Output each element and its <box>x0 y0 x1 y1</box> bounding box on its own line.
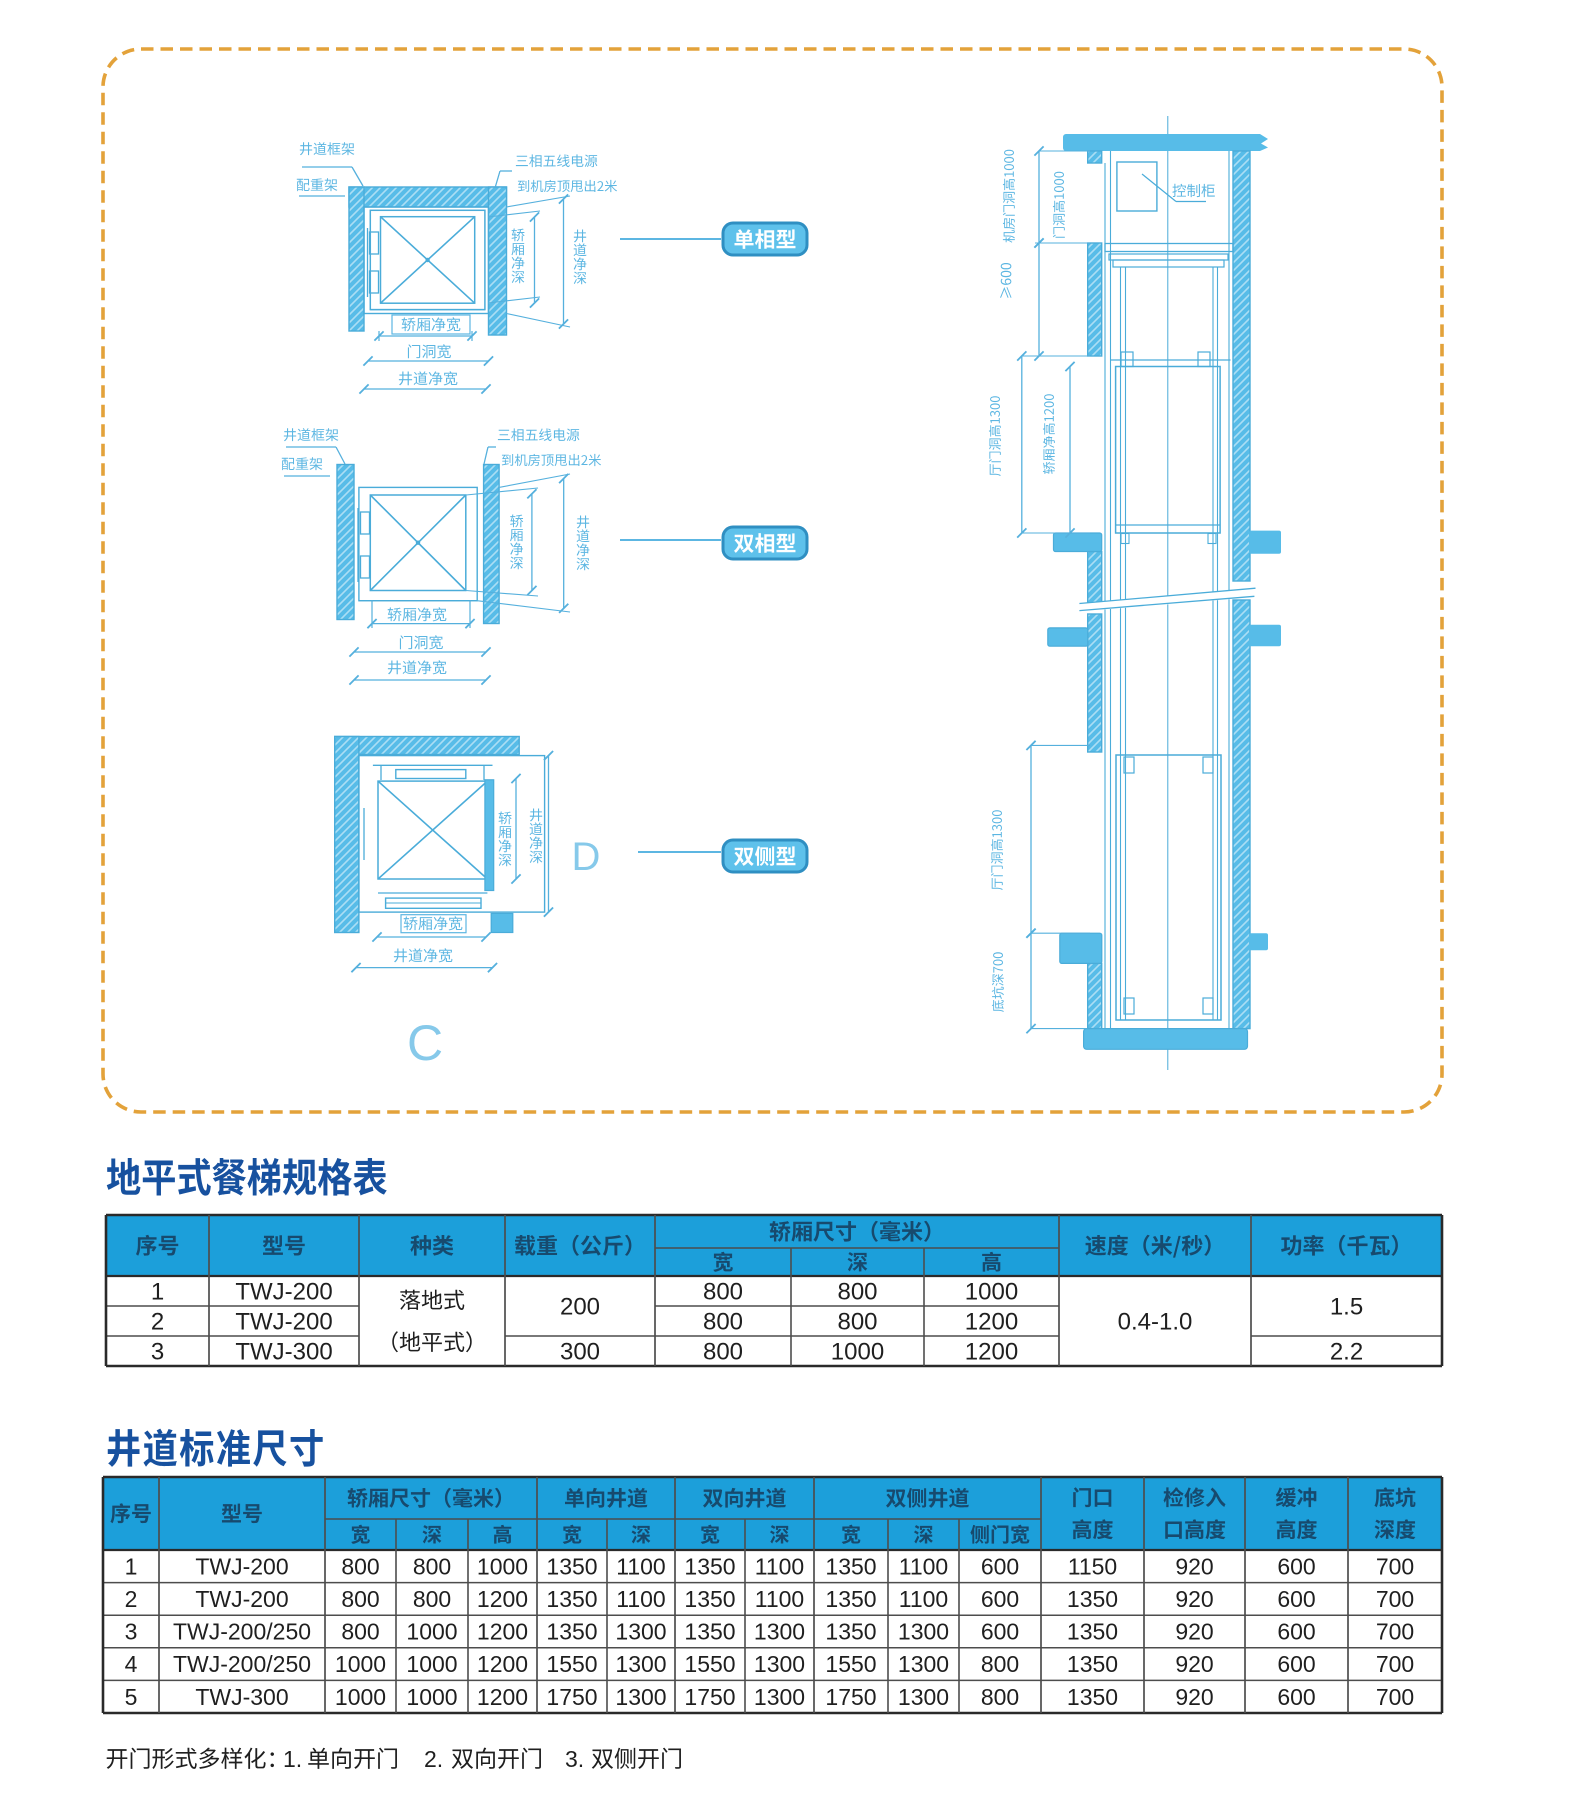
svg-text:1000: 1000 <box>335 1684 386 1710</box>
svg-text:3.: 3. <box>565 1746 584 1772</box>
svg-text:1000: 1000 <box>406 1684 457 1710</box>
svg-text:4: 4 <box>125 1651 138 1677</box>
svg-text:600: 600 <box>981 1553 1019 1579</box>
svg-text:1300: 1300 <box>615 1684 666 1710</box>
svg-text:800: 800 <box>413 1586 451 1612</box>
svg-text:1350: 1350 <box>546 1619 597 1645</box>
svg-text:1350: 1350 <box>546 1553 597 1579</box>
svg-text:800: 800 <box>413 1553 451 1579</box>
svg-text:C: C <box>407 1015 443 1071</box>
svg-text:1350: 1350 <box>1067 1684 1118 1710</box>
svg-text:800: 800 <box>981 1684 1019 1710</box>
svg-text:1300: 1300 <box>754 1684 805 1710</box>
svg-text:700: 700 <box>1376 1684 1414 1710</box>
svg-text:1000: 1000 <box>965 1278 1018 1305</box>
svg-text:1350: 1350 <box>684 1586 735 1612</box>
svg-text:1300: 1300 <box>754 1619 805 1645</box>
svg-text:1: 1 <box>151 1278 164 1305</box>
svg-text:1: 1 <box>125 1553 138 1579</box>
svg-text:700: 700 <box>1376 1553 1414 1579</box>
svg-text:800: 800 <box>341 1619 379 1645</box>
svg-text:1200: 1200 <box>477 1619 528 1645</box>
svg-text:920: 920 <box>1175 1553 1213 1579</box>
svg-text:1000: 1000 <box>831 1338 884 1365</box>
svg-text:1750: 1750 <box>546 1684 597 1710</box>
svg-text:1300: 1300 <box>615 1651 666 1677</box>
svg-text:1100: 1100 <box>755 1553 804 1579</box>
svg-text:1350: 1350 <box>546 1586 597 1612</box>
svg-text:600: 600 <box>981 1619 1019 1645</box>
svg-text:2: 2 <box>151 1308 164 1335</box>
svg-text:1000: 1000 <box>335 1651 386 1677</box>
svg-text:1350: 1350 <box>684 1619 735 1645</box>
svg-text:1350: 1350 <box>825 1619 876 1645</box>
svg-text:1350: 1350 <box>1067 1586 1118 1612</box>
svg-text:1000: 1000 <box>477 1553 528 1579</box>
svg-text:D: D <box>572 835 601 879</box>
svg-text:1100: 1100 <box>899 1553 948 1579</box>
svg-text:1100: 1100 <box>755 1586 804 1612</box>
svg-text:1200: 1200 <box>477 1586 528 1612</box>
svg-text:1000: 1000 <box>406 1619 457 1645</box>
svg-text:TWJ-200: TWJ-200 <box>235 1278 332 1305</box>
svg-text:920: 920 <box>1175 1586 1213 1612</box>
svg-text:1150: 1150 <box>1068 1553 1117 1579</box>
svg-text:1200: 1200 <box>477 1684 528 1710</box>
svg-text:2: 2 <box>125 1586 138 1612</box>
svg-text:600: 600 <box>1277 1553 1315 1579</box>
svg-text:1350: 1350 <box>825 1586 876 1612</box>
svg-text:800: 800 <box>981 1651 1019 1677</box>
svg-text:1300: 1300 <box>615 1619 666 1645</box>
svg-text:800: 800 <box>837 1308 877 1335</box>
svg-text:3: 3 <box>125 1619 138 1645</box>
svg-text:700: 700 <box>1376 1619 1414 1645</box>
svg-text:920: 920 <box>1175 1619 1213 1645</box>
svg-text:1350: 1350 <box>1067 1619 1118 1645</box>
svg-text:800: 800 <box>341 1586 379 1612</box>
svg-text:700: 700 <box>1376 1651 1414 1677</box>
svg-text:1000: 1000 <box>406 1651 457 1677</box>
svg-text:800: 800 <box>703 1338 743 1365</box>
svg-text:1300: 1300 <box>754 1651 805 1677</box>
svg-text:2.2: 2.2 <box>1330 1338 1363 1365</box>
svg-text:800: 800 <box>703 1278 743 1305</box>
svg-text:1100: 1100 <box>616 1553 665 1579</box>
svg-text:1300: 1300 <box>898 1651 949 1677</box>
svg-text:1200: 1200 <box>477 1651 528 1677</box>
svg-text:1.5: 1.5 <box>1330 1293 1363 1320</box>
svg-text:700: 700 <box>1376 1586 1414 1612</box>
svg-text:1200: 1200 <box>965 1308 1018 1335</box>
svg-text:600: 600 <box>1277 1651 1315 1677</box>
svg-text:TWJ-300: TWJ-300 <box>195 1684 288 1710</box>
svg-text:600: 600 <box>1277 1619 1315 1645</box>
svg-text:600: 600 <box>1277 1684 1315 1710</box>
svg-text:800: 800 <box>703 1308 743 1335</box>
svg-text:TWJ-200/250: TWJ-200/250 <box>173 1651 311 1677</box>
svg-text:920: 920 <box>1175 1684 1213 1710</box>
svg-text:1550: 1550 <box>825 1651 876 1677</box>
svg-text:1200: 1200 <box>965 1338 1018 1365</box>
svg-text:TWJ-200: TWJ-200 <box>195 1553 288 1579</box>
svg-text:TWJ-200: TWJ-200 <box>195 1586 288 1612</box>
svg-text:1100: 1100 <box>899 1586 948 1612</box>
svg-text:1350: 1350 <box>825 1553 876 1579</box>
svg-text:TWJ-200: TWJ-200 <box>235 1308 332 1335</box>
svg-text:800: 800 <box>341 1553 379 1579</box>
svg-text:TWJ-200/250: TWJ-200/250 <box>173 1619 311 1645</box>
svg-text:1350: 1350 <box>684 1553 735 1579</box>
svg-text:TWJ-300: TWJ-300 <box>235 1338 332 1365</box>
svg-text:1550: 1550 <box>684 1651 735 1677</box>
svg-text:5: 5 <box>125 1684 138 1710</box>
svg-text:1.: 1. <box>283 1746 302 1772</box>
svg-text:2.: 2. <box>424 1746 443 1772</box>
svg-text:1350: 1350 <box>1067 1651 1118 1677</box>
svg-text:800: 800 <box>837 1278 877 1305</box>
svg-text:1100: 1100 <box>616 1586 665 1612</box>
svg-text:0.4-1.0: 0.4-1.0 <box>1118 1308 1193 1335</box>
svg-text:1750: 1750 <box>684 1684 735 1710</box>
svg-text:1300: 1300 <box>898 1684 949 1710</box>
svg-text:600: 600 <box>1277 1586 1315 1612</box>
svg-text:1750: 1750 <box>825 1684 876 1710</box>
svg-text:1300: 1300 <box>898 1619 949 1645</box>
svg-text:300: 300 <box>560 1338 600 1365</box>
svg-text:600: 600 <box>981 1586 1019 1612</box>
svg-text:1550: 1550 <box>546 1651 597 1677</box>
svg-text:200: 200 <box>560 1293 600 1320</box>
svg-text:920: 920 <box>1175 1651 1213 1677</box>
svg-text:3: 3 <box>151 1338 164 1365</box>
